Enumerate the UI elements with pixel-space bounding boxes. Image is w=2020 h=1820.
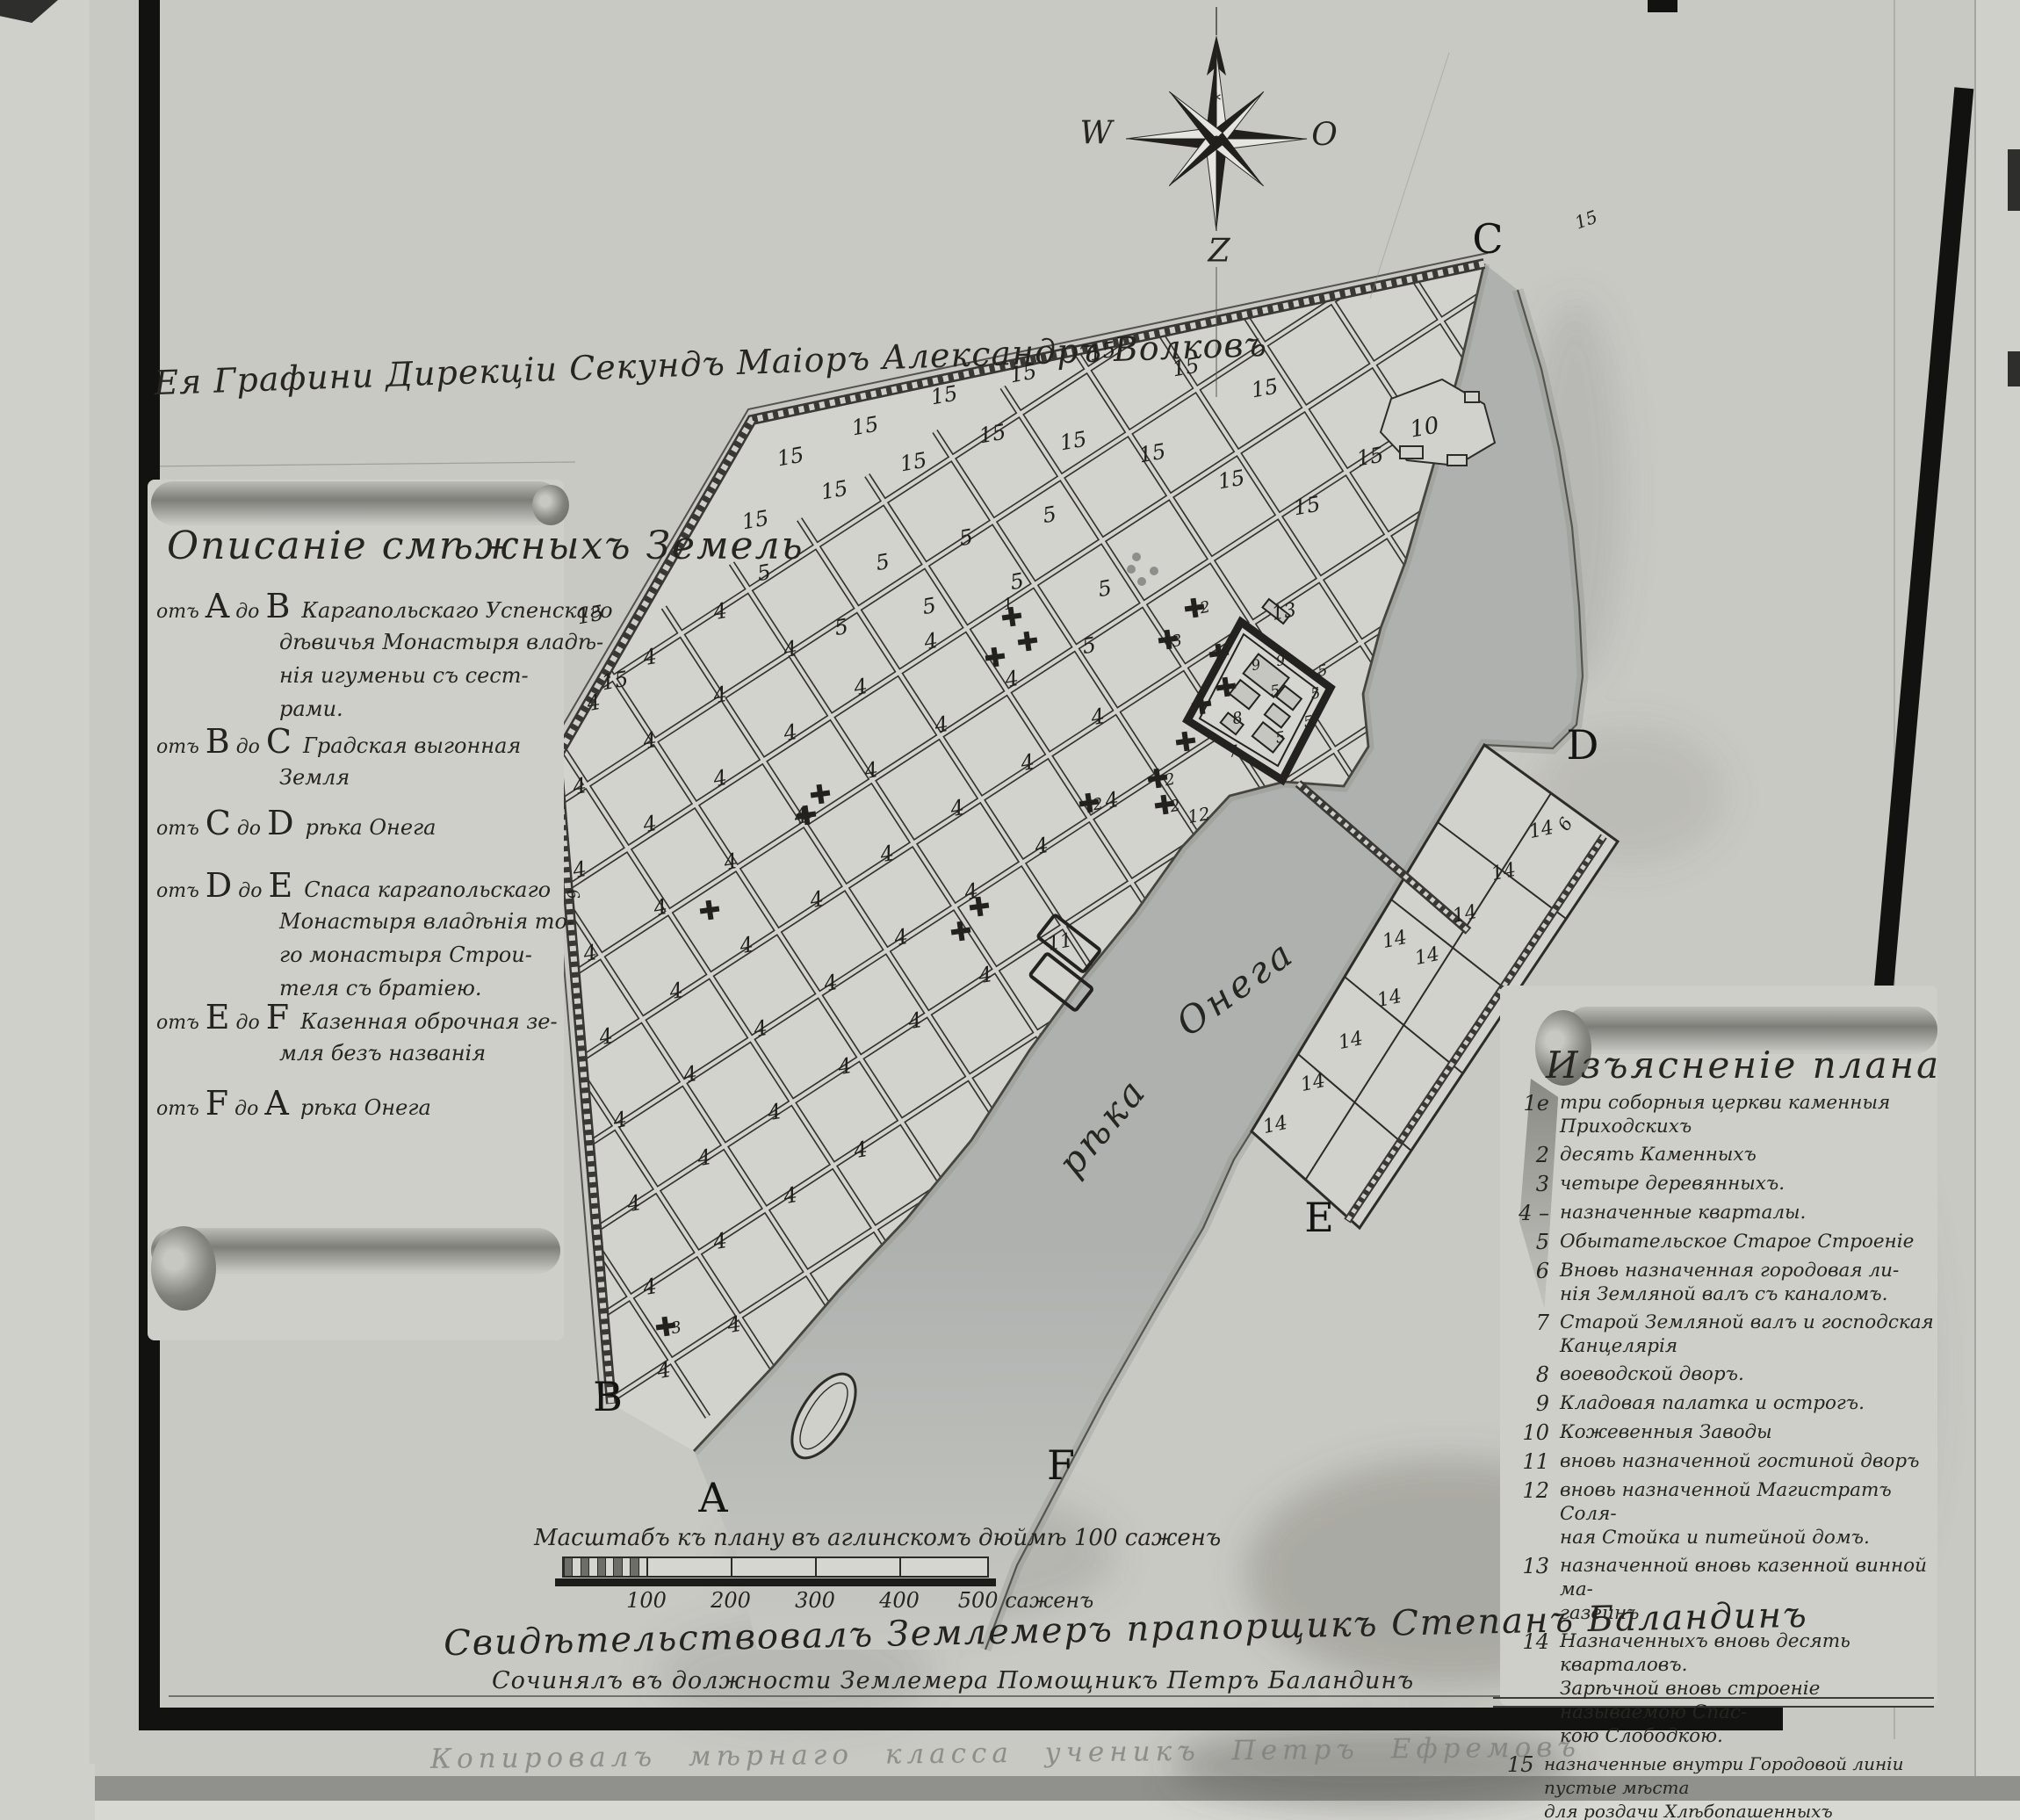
adjacent-lands-item-head: отъBдоCГрадская выгонная (156, 722, 569, 761)
legend-item-text: назначенные кварталы. (1560, 1201, 1806, 1225)
boundary-letter-ref: A (264, 1084, 288, 1123)
scale-tick-number: 100 (626, 1588, 667, 1613)
legend-item-line: Кладовая палатка и острогъ. (1560, 1391, 1865, 1415)
legend-item-text: Кожевенныя Заводы (1560, 1420, 1772, 1445)
legend-item-line: Старой Земляной валъ и господская (1560, 1311, 1934, 1334)
church-cross-icon (655, 1316, 677, 1338)
legend-item-number: 8 (1507, 1362, 1549, 1387)
adjacent-lands-item-head: отъDдоEСпаса каргапольскаго (156, 866, 569, 905)
block-number: 15 (1171, 353, 1201, 382)
legend-item-text: вновь назначенной Магистратъ Соля-ная Ст… (1560, 1478, 1934, 1549)
legend-item-text: вновь назначенной гостиной дворъ (1560, 1449, 1919, 1474)
church-cross-icon (1017, 631, 1039, 653)
block-number: 15 (1250, 374, 1281, 403)
legend-item-line: нія Земляной валъ съ каналомъ. (1560, 1282, 1899, 1306)
boundary-letter-ref: B (265, 587, 290, 625)
legend-item-line: Приходскихъ (1560, 1115, 1890, 1138)
scale-bar (562, 1556, 989, 1578)
adjacent-lands-text: Градская выгонная (303, 733, 521, 758)
scale-cell (815, 1558, 899, 1576)
adjacent-lands-text: рами. (279, 692, 569, 726)
church-cross-icon (1158, 629, 1180, 651)
legend-item-number: 2 (1507, 1143, 1549, 1167)
adjacent-lands-text: Казенная оброчная зе- (300, 1009, 558, 1034)
church-cross-icon (1147, 768, 1169, 790)
block-number: 15 (1216, 466, 1247, 495)
legend-item-number: 6 (1507, 1259, 1549, 1306)
scale-caption: Масштабъ къ плану въ аглинскомъ дюймѣ 10… (534, 1525, 1221, 1551)
legend-item-line: вновь назначенной гостиной дворъ (1560, 1449, 1919, 1473)
compass-star: * (1126, 51, 1307, 231)
scale-mini-cell (564, 1558, 572, 1576)
church-cross-icon (950, 921, 972, 942)
legend-item: 5Обытательское Старое Строеніе (1507, 1230, 1934, 1254)
legend-item-number: 1е (1507, 1091, 1549, 1138)
legend-item-line: кою Слободкою. (1560, 1724, 1934, 1748)
svg-text:*: * (1212, 90, 1222, 112)
legend-item-number: 14 (1507, 1629, 1549, 1748)
legend-item-text: Назначенныхъ вновь десять кварталовъ.Зар… (1560, 1629, 1934, 1748)
legend-item-line: назначенные внутри Городовой линіи пусты… (1544, 1752, 1934, 1800)
scale-mini-cell (597, 1558, 605, 1576)
adjacent-lands-text: го монастыря Строи- (279, 938, 569, 971)
legend-item-line: десять Каменныхъ (1560, 1143, 1757, 1166)
block-number: 15 (898, 448, 929, 477)
boundary-letter-ref: E (268, 866, 292, 905)
legend-item-text: Обытательское Старое Строеніе (1560, 1230, 1914, 1254)
church-cross-icon (1208, 643, 1230, 665)
legend-item-text: Вновь назначенная городовая ли-нія Земля… (1560, 1259, 1899, 1306)
block-number: 15 (740, 506, 771, 535)
scale-mini-cell (581, 1558, 588, 1576)
boundary-letter-F: F (1047, 1441, 1075, 1489)
legend-item-text: назначенные внутри Городовой линіи пусты… (1544, 1752, 1934, 1820)
block-number: 15 (1008, 359, 1039, 388)
church-cross-icon (985, 646, 1006, 668)
block-number: 15 (575, 601, 606, 630)
church-cross-icon (1184, 597, 1206, 619)
legend-item-line: Обытательское Старое Строеніе (1560, 1230, 1914, 1253)
surveyor-signature-2: Сочинялъ въ должности Землемера Помощник… (492, 1667, 1414, 1694)
block-number: 15 (850, 412, 881, 441)
adjacent-lands-item: отъFдоAрѣка Онега (156, 1084, 569, 1123)
compass-west-label: W (1079, 116, 1112, 152)
adjacent-lands-item-head: отъEдоFКазенная оброчная зе- (156, 998, 569, 1036)
church-cross-icon (1001, 606, 1023, 628)
adjacent-lands-text: мля безъ названія (279, 1036, 569, 1070)
legend-item-text: Кладовая палатка и острогъ. (1560, 1391, 1865, 1416)
compass-east-label: O (1311, 118, 1338, 154)
boundary-letter-ref: A (206, 587, 229, 625)
block-number: 15 (978, 420, 1008, 449)
legend-item-line: Кожевенныя Заводы (1560, 1420, 1772, 1444)
boundary-letter-D: D (1567, 721, 1599, 769)
adjacent-lands-item: отъEдоFКазенная оброчная зе-мля безъ наз… (156, 998, 569, 1070)
legend-item-line: воеводской дворъ. (1560, 1362, 1744, 1386)
scale-cell (899, 1558, 984, 1576)
church-cross-icon (1175, 731, 1197, 753)
block-number: 10 (1408, 412, 1441, 443)
adjacent-lands-text: Монастыря владѣнія то- (279, 905, 569, 938)
adjacent-lands-text: нія игуменьи съ сест- (279, 659, 569, 692)
church-cross-icon (796, 805, 818, 827)
adjacent-lands-scroll-curl (532, 485, 569, 525)
legend-item-number: 12 (1507, 1478, 1549, 1549)
boundary-letter-B: B (593, 1373, 623, 1420)
adjacent-lands-item: отъBдоCГрадская выгоннаяЗемля (156, 722, 569, 794)
scale-tick-number: 200 (711, 1588, 751, 1613)
church-cross-icon (699, 899, 721, 921)
legend-item-line: для роздачи Хлѣбопашенныхъ Огородовъ. (1544, 1800, 1934, 1820)
adjacent-lands-item: отъAдоBКаргапольскаго Успенскагодѣвичья … (156, 587, 569, 726)
legend-item: 12вновь назначенной Магистратъ Соля-ная … (1507, 1478, 1934, 1549)
legend-item: 6Вновь назначенная городовая ли-нія Земл… (1507, 1259, 1934, 1306)
legend-item-number: 5 (1507, 1230, 1549, 1254)
church-cross-icon (810, 784, 832, 805)
church-cross-icon (1154, 794, 1176, 816)
block-number: 15 (929, 381, 960, 410)
legend-item: 7Старой Земляной валъ и господскаяКанцел… (1507, 1311, 1934, 1358)
compass-south-label: Z (1208, 234, 1230, 270)
adjacent-lands-title: Описаніе смѣжныхъ Земель (167, 524, 804, 568)
adjacent-lands-item-head: отъCдоDрѣка Онега (156, 804, 569, 842)
legend-item-text: четыре деревянныхъ. (1560, 1172, 1785, 1196)
legend-item: 1етри соборныя церкви каменныяПриходских… (1507, 1091, 1934, 1138)
block-number: 15 (1087, 337, 1118, 366)
church-cross-icon (969, 896, 991, 918)
legend-item-line: Канцелярія (1560, 1334, 1934, 1358)
block-number: 15 (600, 667, 631, 696)
block-number: 11 (1046, 929, 1074, 955)
adjacent-lands-item-head: отъFдоAрѣка Онега (156, 1084, 569, 1123)
legend-item: 11вновь назначенной гостиной дворъ (1507, 1449, 1934, 1474)
boundary-letter-ref: C (266, 722, 292, 761)
legend-title: Изъясненіе плана (1546, 1044, 1941, 1087)
block-number: 15 (1058, 427, 1089, 456)
scale-cell (646, 1558, 731, 1576)
scale-subdivided-cell (564, 1558, 646, 1576)
legend-item: 10Кожевенныя Заводы (1507, 1420, 1934, 1445)
boundary-letter-C: C (1472, 215, 1503, 263)
adjacent-lands-text: Земля (279, 761, 569, 794)
adjacent-lands-text: Спаса каргапольскаго (304, 877, 551, 902)
legend-item: 2десять Каменныхъ (1507, 1143, 1934, 1167)
church-cross-icon (1191, 694, 1213, 716)
scale-bar-shadow (555, 1578, 996, 1586)
scale-mini-cell (622, 1558, 630, 1576)
boundary-letter-ref: D (267, 804, 293, 842)
map-sheet-scan: * Описаніе смѣжныхъ Земель отъAдоBКаргап… (0, 0, 2020, 1820)
legend-list: 1етри соборныя церкви каменныяПриходских… (1507, 1091, 1934, 1820)
block-number: 15 (1355, 443, 1386, 472)
legend-item-number: 3 (1507, 1172, 1549, 1196)
adjacent-lands-item: отъDдоEСпаса каргапольскагоМонастыря вла… (156, 866, 569, 1005)
legend-item-line: вновь назначенной Магистратъ Соля- (1560, 1478, 1934, 1526)
adjacent-lands-text: рѣка Онега (300, 1095, 431, 1120)
legend-item-line: Вновь назначенная городовая ли- (1560, 1259, 1899, 1282)
boundary-letter-ref: C (206, 804, 231, 842)
scale-mini-cell (605, 1558, 613, 1576)
scale-mini-cell (630, 1558, 638, 1576)
adjacent-lands-text: дѣвичья Монастыря владѣ- (279, 625, 569, 659)
adjacent-lands-scroll-bottom-curl (151, 1226, 216, 1311)
adjacent-lands-text: Каргапольскаго Успенскаго (301, 598, 612, 623)
church-cross-icon (1079, 792, 1100, 814)
boundary-letter-A: A (698, 1474, 727, 1521)
legend-item-line: назначенные кварталы. (1560, 1201, 1806, 1224)
adjacent-lands-scroll-top-roll (151, 481, 560, 525)
block-number: 13 (1270, 599, 1298, 625)
block-number: 15 (1137, 439, 1168, 468)
legend-item-number: 10 (1507, 1420, 1549, 1445)
scale-mini-cell (638, 1558, 646, 1576)
legend-item-line: три соборныя церкви каменныя (1560, 1091, 1890, 1115)
legend-item: 14Назначенныхъ вновь десять кварталовъ.З… (1507, 1629, 1934, 1748)
scale-end-label: 500 саженъ (958, 1588, 1093, 1613)
boundary-letter-ref: E (206, 998, 230, 1036)
legend-item: 8воеводской дворъ. (1507, 1362, 1934, 1387)
scale-tick-number: 300 (795, 1588, 835, 1613)
legend-item-text: три соборныя церкви каменныяПриходскихъ (1560, 1091, 1890, 1138)
frame-top-tick (1648, 0, 1677, 12)
block-number: 15 (819, 476, 850, 505)
legend-item-line: ная Стойка и питейной домъ. (1560, 1526, 1934, 1549)
scale-mini-cell (572, 1558, 580, 1576)
church-cross-icon (1216, 676, 1237, 698)
block-number: 12 (1186, 803, 1211, 827)
legend-item: 3четыре деревянныхъ. (1507, 1172, 1934, 1196)
legend-item-line: Зарѣчной вновь строеніе называемою Спас- (1560, 1677, 1934, 1724)
boundary-letter-ref: D (206, 866, 232, 905)
adjacent-lands-item-head: отъAдоBКаргапольскаго Успенскаго (156, 587, 569, 625)
legend-item-text: десять Каменныхъ (1560, 1143, 1757, 1167)
scale-mini-cell (613, 1558, 621, 1576)
boundary-letter-ref: F (266, 998, 289, 1036)
legend-item-text: Старой Земляной валъ и господскаяКанцеля… (1560, 1311, 1934, 1358)
legend-item-number: 4 – (1507, 1201, 1549, 1225)
legend-item-line: назначенной вновь казенной винной ма- (1560, 1554, 1934, 1601)
legend-item: 4 –назначенные кварталы. (1507, 1201, 1934, 1225)
legend-item-number: 7 (1507, 1311, 1549, 1358)
legend-item-number: 9 (1507, 1391, 1549, 1416)
boundary-letter-ref: B (206, 722, 230, 761)
legend-item-line: четыре деревянныхъ. (1560, 1172, 1785, 1195)
scale-tick-number: 400 (879, 1588, 920, 1613)
legend-item: 9Кладовая палатка и острогъ. (1507, 1391, 1934, 1416)
boundary-letter-E: E (1304, 1194, 1334, 1241)
block-number: 15 (1292, 492, 1323, 521)
block-number: 15 (776, 443, 806, 472)
adjacent-lands-item: отъCдоDрѣка Онега (156, 804, 569, 842)
boundary-letter-ref: F (206, 1084, 228, 1123)
scale-mini-cell (588, 1558, 596, 1576)
legend-item-number: 11 (1507, 1449, 1549, 1474)
scale-cell (731, 1558, 815, 1576)
legend-item-text: воеводской дворъ. (1560, 1362, 1744, 1387)
adjacent-lands-text: рѣка Онега (306, 815, 436, 840)
